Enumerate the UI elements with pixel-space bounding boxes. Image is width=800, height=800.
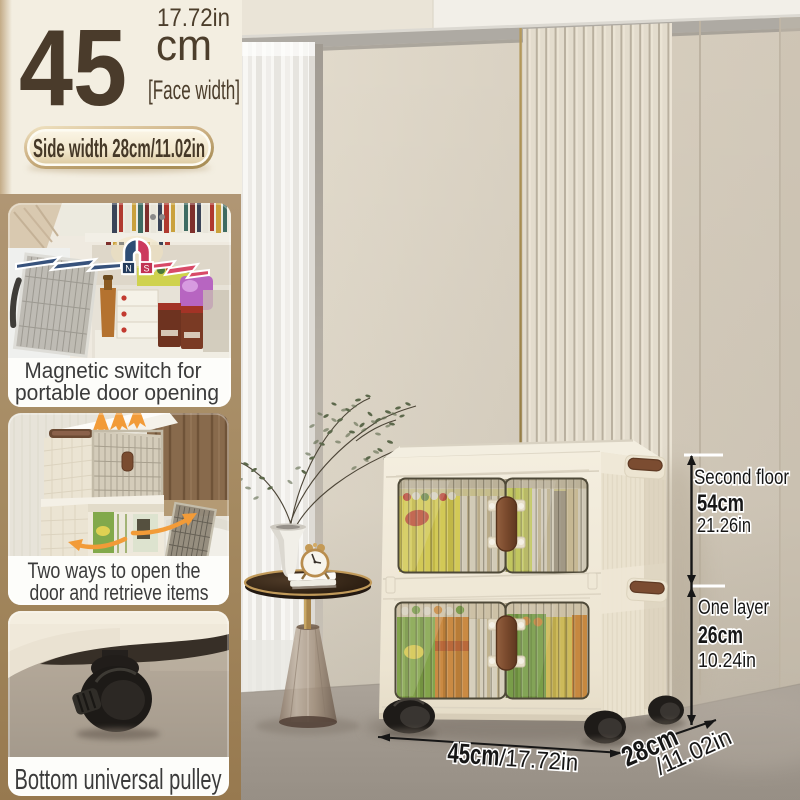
svg-text:[Face width]: [Face width] [148,75,240,105]
svg-text:One layer: One layer [698,596,769,619]
svg-text:S: S [143,264,149,274]
svg-text:N: N [125,264,132,274]
svg-text:10.24in: 10.24in [698,650,756,672]
svg-text:Second floor: Second floor [694,466,789,489]
svg-text:21.26in: 21.26in [697,515,751,537]
svg-text:Side width 28cm/11.02in: Side width 28cm/11.02in [33,133,205,163]
svg-text:/17.72in: /17.72in [498,744,579,776]
svg-text:door and retrieve items: door and retrieve items [30,580,209,605]
svg-text:54cm: 54cm [697,490,744,517]
svg-text:Bottom universal pulley: Bottom universal pulley [15,764,222,796]
svg-text:26cm: 26cm [698,622,743,649]
svg-text:45cm: 45cm [447,737,501,771]
svg-text:cm: cm [156,21,212,70]
svg-text:portable door opening: portable door opening [15,380,219,405]
svg-text:45: 45 [19,7,127,129]
